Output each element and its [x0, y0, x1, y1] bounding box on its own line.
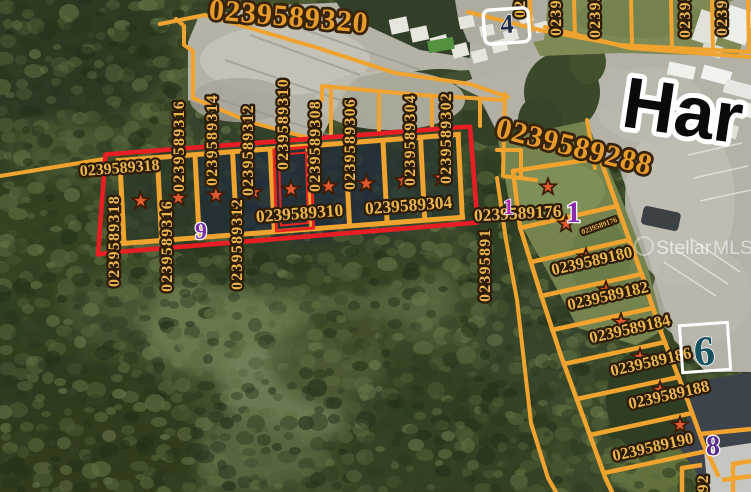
svg-text:4: 4 [499, 9, 515, 40]
svg-text:0239589: 0239589 [548, 0, 565, 36]
svg-text:Stellar: Stellar [656, 237, 712, 259]
svg-text:02395891: 02395891 [477, 228, 494, 302]
svg-text:0239589: 0239589 [587, 0, 604, 38]
svg-text:0239589192: 0239589192 [695, 474, 712, 492]
svg-text:0239589302: 0239589302 [438, 92, 455, 184]
svg-text:0239589312: 0239589312 [240, 104, 257, 196]
svg-text:0239589304: 0239589304 [402, 94, 419, 186]
svg-text:0239589310: 0239589310 [275, 78, 292, 170]
svg-text:0239589306: 0239589306 [342, 98, 359, 190]
svg-text:0239589: 0239589 [714, 0, 731, 36]
svg-text:0239589316: 0239589316 [159, 200, 176, 292]
svg-text:MLS: MLS [713, 237, 751, 259]
svg-text:0239589316: 0239589316 [171, 100, 188, 192]
svg-text:0239589312: 0239589312 [229, 198, 246, 290]
svg-text:0239589314: 0239589314 [204, 94, 221, 186]
svg-text:0239589: 0239589 [677, 0, 694, 38]
svg-text:1: 1 [566, 196, 581, 229]
svg-text:8: 8 [706, 431, 720, 462]
svg-text:9: 9 [195, 219, 207, 245]
svg-text:0239589308: 0239589308 [307, 100, 324, 192]
svg-text:1: 1 [503, 194, 514, 219]
svg-text:6: 6 [692, 328, 716, 375]
svg-text:0239589318: 0239589318 [106, 195, 123, 287]
